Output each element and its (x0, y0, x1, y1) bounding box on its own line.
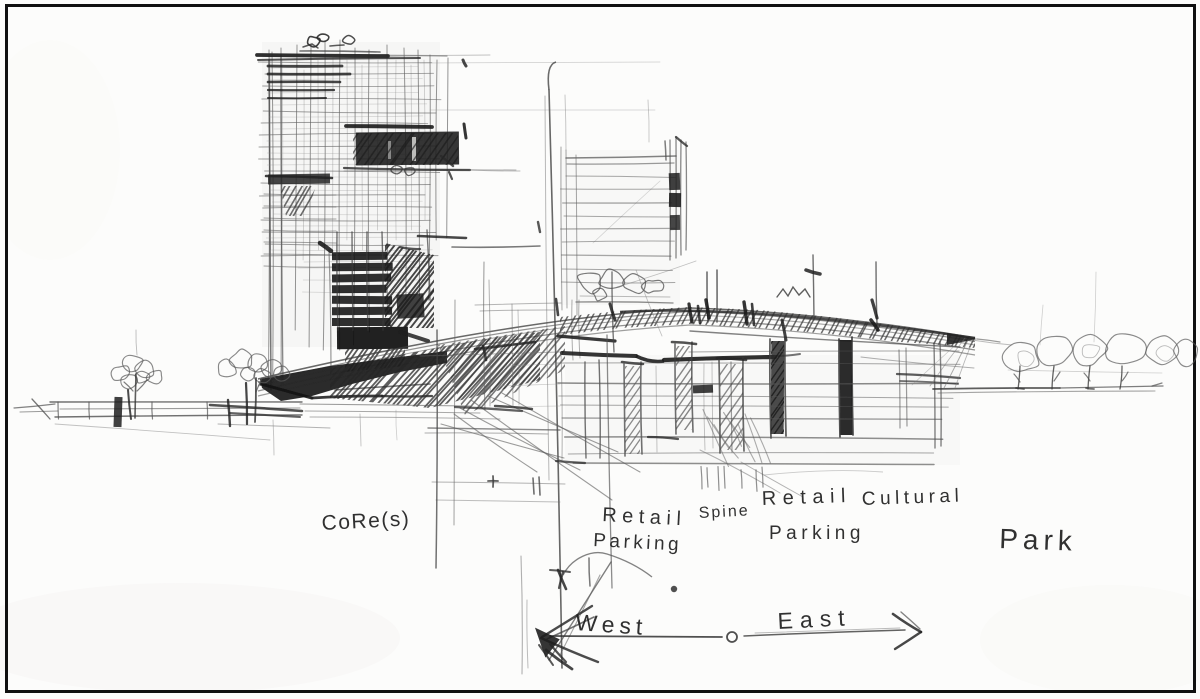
svg-text:Park: Park (999, 523, 1078, 557)
svg-text:Retail: Retail (602, 504, 687, 530)
svg-text:CoRe(s): CoRe(s) (321, 507, 411, 535)
svg-text:Parking: Parking (769, 523, 865, 544)
svg-text:Cultural: Cultural (861, 485, 963, 510)
svg-text:Spine: Spine (698, 502, 750, 522)
svg-text:West: West (575, 609, 649, 640)
svg-text:Retail: Retail (761, 485, 852, 510)
svg-text:East: East (777, 604, 852, 634)
